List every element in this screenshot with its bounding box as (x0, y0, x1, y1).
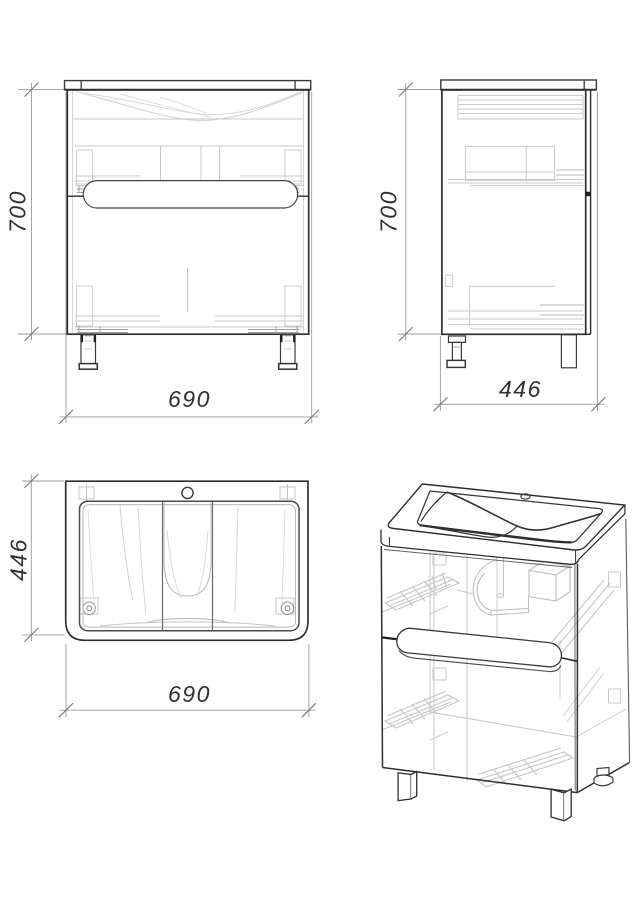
svg-text:690: 690 (168, 386, 211, 412)
svg-text:446: 446 (6, 538, 32, 581)
svg-text:446: 446 (499, 376, 542, 402)
svg-text:690: 690 (168, 681, 211, 707)
svg-text:700: 700 (376, 190, 402, 233)
svg-text:700: 700 (5, 190, 31, 233)
